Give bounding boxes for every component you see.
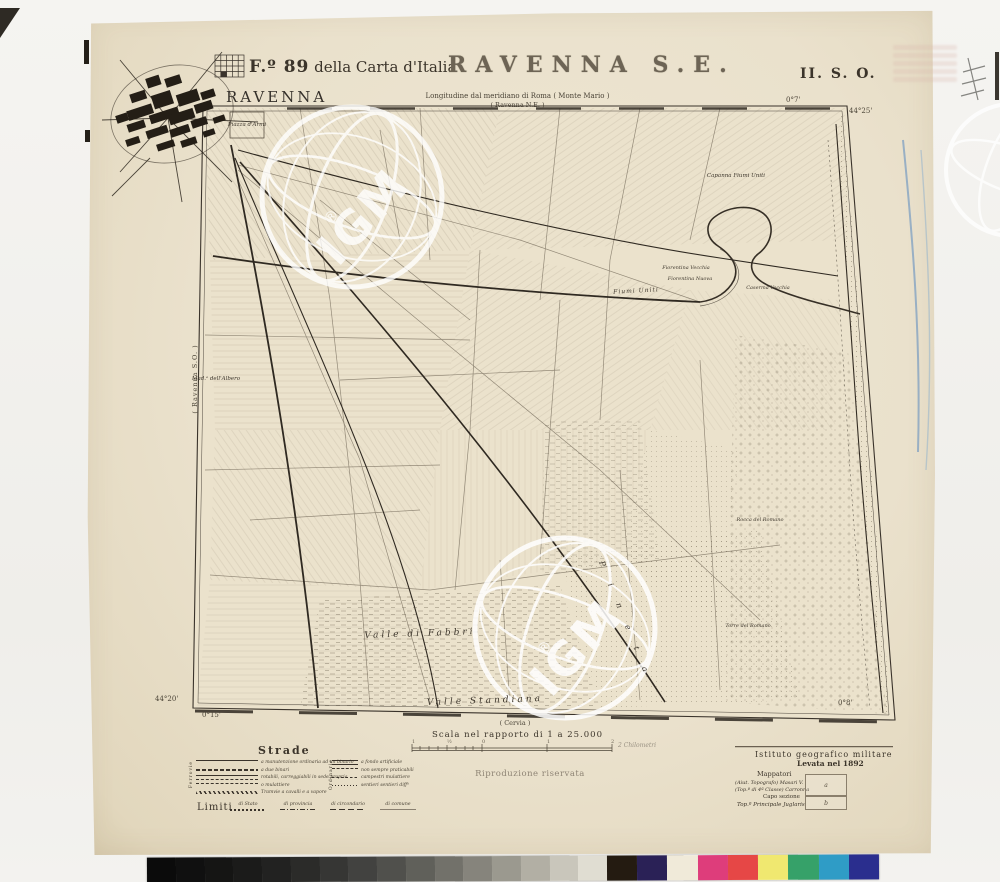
calibration-color-patch	[849, 854, 879, 879]
scale-unit-label: 2 Chilometri	[618, 742, 656, 749]
map-place-label: Torre del Romano	[725, 623, 770, 629]
calibration-gray-patch	[147, 857, 176, 882]
corner-latitude-sw: 44°20'	[155, 695, 178, 703]
legend-symbol	[332, 760, 358, 765]
map-place-label: Rocca del Romano	[736, 517, 783, 523]
scale-caption: Scala nel rapporto di 1 a 25.000	[405, 730, 630, 740]
legend-item-label: Tramvie a cavalli e a vapore	[261, 790, 327, 795]
scan-corner-mark	[0, 8, 20, 38]
boundary-legend-item: di Stato	[230, 802, 266, 813]
longitude-note: Longitudine dal meridiano di Roma ( Mont…	[395, 92, 640, 100]
map-title: RAVENNA S.E.	[448, 52, 668, 78]
boundary-legend-item: di provincia	[280, 802, 316, 813]
legend-symbol	[332, 777, 358, 778]
calibration-color-patch	[607, 855, 637, 880]
section-head-name: Top.º Principale Juglaris	[737, 802, 805, 808]
pencil-marks-gray	[961, 58, 986, 100]
surveyor-box-b: b	[805, 796, 847, 810]
calibration-color-patch	[758, 855, 788, 880]
sheet-index-grid-icon	[214, 54, 246, 79]
legend-roads-left-column: a manutenzione ordinaria ad un binarioa …	[196, 760, 346, 795]
legend-item-label: a fondo artificiale	[361, 760, 402, 765]
legend-railways-label: Ferrovie	[189, 761, 194, 788]
legend-symbol	[196, 760, 258, 765]
map-place-label: Fiorentina Vecchia	[662, 265, 710, 271]
calibration-gray-patch	[521, 856, 550, 881]
corner-latitude-ne: 44°25'	[849, 107, 872, 115]
legend-item-label: a due binari	[261, 768, 289, 773]
boundary-legend-item: di circondario	[330, 802, 366, 813]
legend-roads-right-column: a fondo artificialenon sempre praticabil…	[332, 760, 427, 788]
legend-row: a manutenzione ordinaria ad un binario	[196, 760, 346, 765]
legend-symbol	[332, 768, 358, 773]
map-place-label: Piazza d'Armi	[228, 122, 266, 128]
calibration-gray-patch	[377, 856, 406, 881]
sheet-number: F.º 89	[249, 57, 309, 77]
calibration-gray-patch	[406, 856, 435, 881]
surveyors-title: Mappatori	[757, 770, 791, 778]
scan-edge-mark	[995, 52, 999, 100]
paper-edge-mark	[85, 130, 90, 142]
scale-tick-number: ½	[447, 739, 452, 745]
legend-row: campestri mulattiere	[332, 775, 427, 780]
surveyor-b: (Top.º di 4ª Classe) Carronna	[735, 787, 809, 793]
map-place-label: Capanna Fiumi Uniti	[707, 173, 765, 179]
map-place-label: Caserma Vecchia	[746, 285, 790, 291]
corner-longitude-top: 0°7'	[786, 96, 800, 104]
calibration-color-patch	[637, 855, 667, 880]
quadrant-code: II. S. O.	[800, 66, 876, 82]
legend-row: non sempre praticabili	[332, 768, 427, 773]
institute-name: Istituto geografico militare	[755, 750, 893, 759]
legend-item-label: o mulattiere	[261, 783, 290, 788]
legend-symbol	[196, 791, 258, 795]
legend-symbol	[332, 785, 358, 786]
legend-row: Tramvie a cavalli e a vapore	[196, 790, 346, 795]
boundary-label: di Stato	[238, 802, 257, 807]
scale-tick-number: 1	[547, 739, 550, 745]
legend-symbol	[196, 783, 258, 788]
boundary-legend-item: di comune	[380, 802, 416, 813]
map-place-label: Fiorentina Nuova	[668, 276, 712, 282]
calibration-gray-patch	[348, 857, 377, 882]
calibration-gray-patch	[319, 857, 348, 882]
imprint-rule	[735, 746, 893, 747]
scale-tick-number: 0	[482, 739, 485, 745]
sheet-reference: F.º 89 della Carta d'Italia	[249, 57, 456, 77]
scale-tick-number: 1	[412, 739, 415, 745]
legend-row: o mulattiere	[196, 783, 346, 788]
corner-longitude-se: 0°8'	[838, 699, 852, 707]
calibration-color-patch	[698, 855, 728, 880]
calibration-gray-patch	[578, 856, 607, 881]
map-place-label: Mad.ᵃ dell'Albero	[192, 376, 240, 382]
surveyor-box-a: a	[805, 774, 847, 796]
calibration-color-patch	[818, 855, 848, 880]
pencil-marks-blue	[903, 140, 930, 470]
igm-watermark-corner	[944, 101, 1000, 239]
boundary-symbol	[330, 809, 366, 810]
calibration-gray-patch	[262, 857, 291, 882]
legend-row: rotabili, carreggiabili in sede propria	[196, 775, 346, 780]
calibration-gray-patch	[291, 857, 320, 882]
calibration-gray-patch	[233, 857, 262, 882]
boundary-symbol	[380, 809, 416, 813]
adjoining-sheet-bottom: ( Cervia )	[455, 719, 575, 727]
legend-row: a fondo artificiale	[332, 760, 427, 765]
legend-item-label: campestri mulattiere	[361, 775, 410, 780]
legend-boundaries-title: Limiti	[197, 802, 233, 813]
legend-row: sentieri sentieri diffˡⁱ	[332, 783, 427, 788]
faint-stamp	[889, 42, 961, 94]
legend-symbol	[196, 769, 258, 771]
boundary-label: di provincia	[284, 802, 313, 807]
boundary-label: di comune	[385, 802, 410, 807]
paper-edge-mark	[84, 40, 89, 64]
scanned-map-page: IGM ® IGM ®	[0, 0, 1000, 882]
legend-item-label: non sempre praticabili	[361, 768, 414, 773]
calibration-gray-patch	[204, 857, 233, 882]
calibration-color-patch	[788, 855, 818, 880]
reproduction-reserved-stamp: Riproduzione riservata	[455, 769, 605, 779]
calibration-gray-patch	[463, 856, 492, 881]
calibration-gray-patch	[492, 856, 521, 881]
calibration-color-patch	[728, 855, 758, 880]
color-calibration-bar	[147, 854, 879, 882]
surveyor-a: (Aiut. Topografo) Masari V.	[735, 780, 803, 786]
city-name-label: RAVENNA	[226, 88, 327, 106]
legend-boundaries-row: di Statodi provinciadi circondariodi com…	[230, 802, 416, 813]
legend-roads-title: Strade	[258, 744, 311, 757]
legend-row: a due binari	[196, 768, 346, 773]
calibration-color-patch	[667, 855, 697, 880]
corner-longitude-sw: 0°15'	[202, 711, 221, 719]
section-head-title: Capo sezione	[763, 794, 800, 800]
legend-symbol	[196, 775, 258, 780]
adjoining-sheet-ne: ( Ravenna N.E. )	[395, 101, 640, 109]
boundary-symbol	[280, 809, 316, 811]
calibration-gray-patch	[176, 857, 205, 882]
scale-tick-number: 2	[611, 739, 614, 745]
calibration-gray-patch	[549, 856, 578, 881]
boundary-label: di circondario	[331, 802, 365, 807]
boundary-symbol	[230, 809, 266, 811]
survey-year: Levata nel 1892	[797, 759, 864, 768]
legend-item-label: sentieri sentieri diffˡⁱ	[361, 783, 409, 788]
calibration-gray-patch	[434, 856, 463, 881]
sheet-series: della Carta d'Italia	[309, 58, 456, 76]
